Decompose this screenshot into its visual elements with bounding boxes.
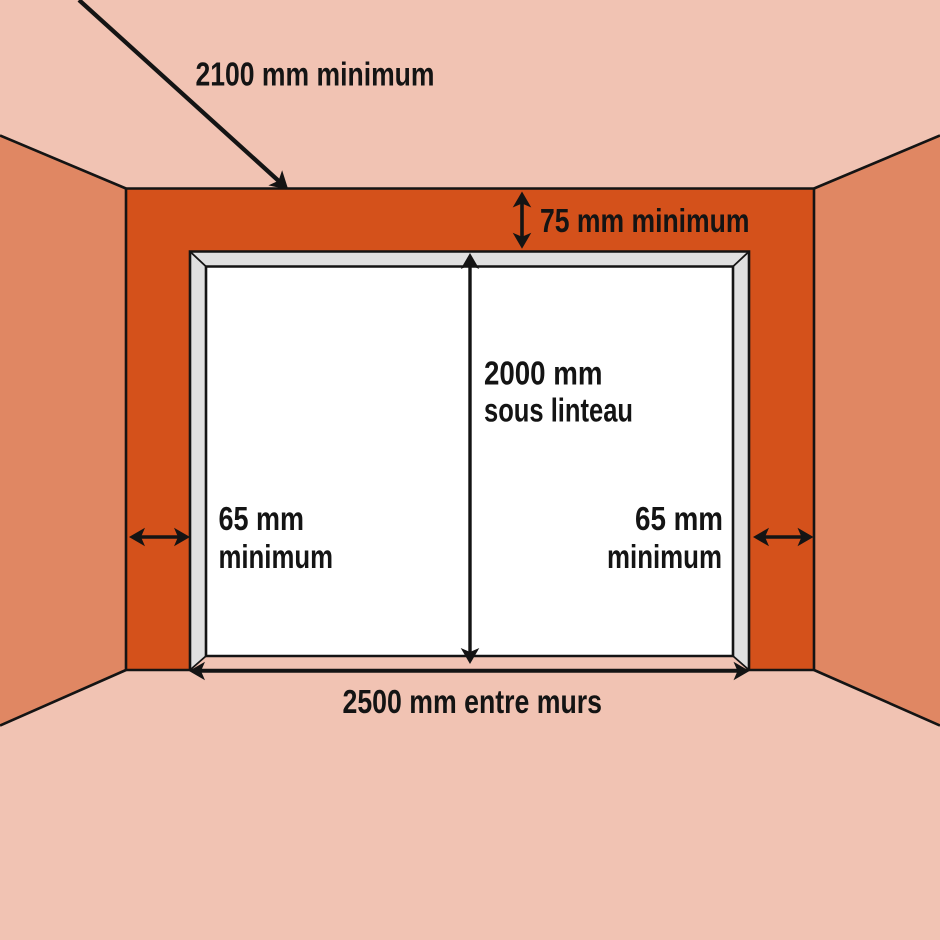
svg-text:65 mm: 65 mm: [635, 500, 723, 537]
svg-text:2000 mm: 2000 mm: [484, 355, 603, 392]
svg-text:2100 mm minimum: 2100 mm minimum: [196, 56, 435, 93]
svg-text:75 mm minimum: 75 mm minimum: [540, 202, 750, 239]
svg-text:2500 mm entre murs: 2500 mm entre murs: [343, 683, 603, 720]
svg-text:65 mm: 65 mm: [219, 500, 305, 537]
svg-text:minimum: minimum: [607, 538, 722, 575]
svg-text:sous linteau: sous linteau: [484, 392, 633, 429]
svg-text:minimum: minimum: [219, 538, 334, 575]
